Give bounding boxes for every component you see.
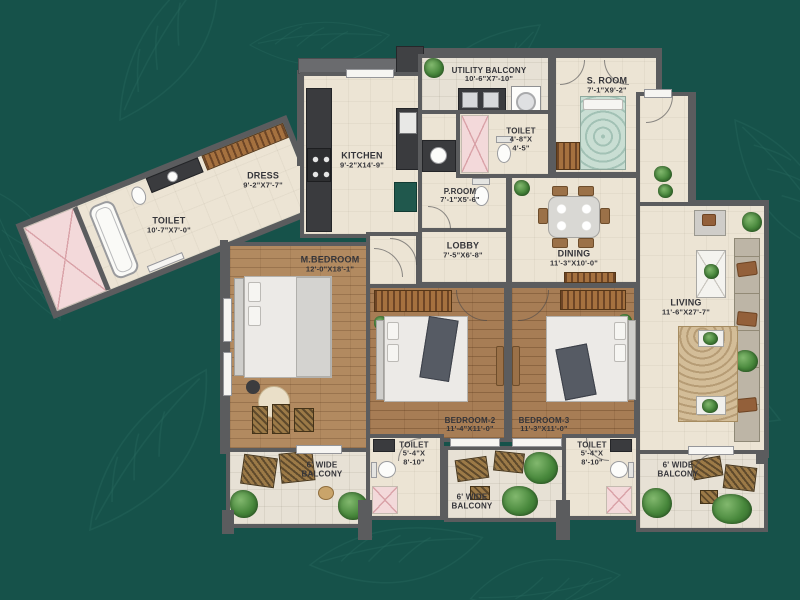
bench xyxy=(252,406,268,434)
plant xyxy=(742,212,762,232)
dress-label: DRESS 9'-2"X7'-7" xyxy=(243,171,283,190)
sofa-pillow xyxy=(736,261,758,278)
plant xyxy=(712,494,752,524)
sofa-pillow xyxy=(736,397,757,413)
p-room-label: P.ROOM 7'-1"X5'-6" xyxy=(440,187,480,205)
tv-unit xyxy=(512,346,520,386)
dining-chair xyxy=(538,208,548,224)
bed3-headboard xyxy=(628,320,636,400)
dining-chair xyxy=(578,238,594,248)
entry-door xyxy=(644,89,672,98)
side-table xyxy=(318,486,334,500)
mbed-headboard xyxy=(234,278,244,376)
armchair-pillow xyxy=(702,214,716,226)
dining-sideboard xyxy=(564,272,616,283)
toilet3-vanity xyxy=(610,439,632,452)
mbed-duvet xyxy=(296,277,331,377)
bedroom3-wardrobe xyxy=(560,290,626,310)
wall-post xyxy=(358,500,372,540)
mbedroom-window xyxy=(223,352,232,396)
dining-label: DINING 11'-3"X10'-0" xyxy=(550,248,598,267)
plant xyxy=(658,184,673,198)
bed-pillow xyxy=(614,322,626,340)
dining-table xyxy=(548,196,600,238)
bed-pillow xyxy=(248,306,261,326)
dining-chair xyxy=(552,186,568,196)
shower-area xyxy=(461,115,489,173)
plant xyxy=(514,180,530,196)
mbedroom-window xyxy=(223,298,232,342)
bed-pillow xyxy=(614,344,626,362)
mbedroom-balcony-door xyxy=(296,445,342,454)
lobby-label: LOBBY 7'-5"X6'-8" xyxy=(443,240,483,259)
bench xyxy=(272,404,290,434)
bed-pillow xyxy=(387,322,399,340)
toilet2-vanity xyxy=(373,439,395,452)
wc-bowl xyxy=(610,461,628,478)
dining-chair xyxy=(600,208,610,224)
plant xyxy=(703,332,718,345)
bed-pillow xyxy=(583,99,623,110)
living-label: LIVING 11'-6"X27'-7" xyxy=(662,297,710,316)
stool xyxy=(246,380,260,394)
stove-cooktop xyxy=(307,148,331,182)
s-room-label: S. ROOM 7'-1"X9'-2" xyxy=(587,75,627,94)
dining-chair xyxy=(552,238,568,248)
wc-tank xyxy=(628,462,634,478)
shower-area xyxy=(606,486,632,514)
bedroom2-label: BEDROOM-2 11'-4"X11'-0" xyxy=(445,416,496,434)
bedroom3-balcony-door xyxy=(512,438,562,447)
toilet-top-label: TOILET 4'-8"X 4'-5" xyxy=(506,126,536,153)
bedroom3-label: BEDROOM-3 11'-3"X11'-0" xyxy=(519,416,570,434)
shower-area xyxy=(372,486,398,514)
wall-post xyxy=(222,510,234,534)
bench xyxy=(294,408,314,432)
tv-unit xyxy=(496,346,504,386)
dining-chair xyxy=(578,186,594,196)
balcony-left-label: 6' WIDE BALCONY xyxy=(302,461,343,480)
kitchen-window xyxy=(346,69,394,78)
proom-wc-tank xyxy=(472,178,490,185)
bed-pillow xyxy=(248,282,261,302)
balcony-middle-label: 6' WIDE BALCONY xyxy=(452,493,493,512)
bedroom2-balcony-door xyxy=(450,438,500,447)
toilet-bedroom2-label: TOILET 5'-4"X 8'-10" xyxy=(399,440,429,467)
utility-balcony-label: UTILITY BALCONY 10'-6"X7'-10" xyxy=(452,66,527,84)
sroom-wardrobe xyxy=(556,142,580,170)
sofa-pillow xyxy=(736,311,757,327)
plant xyxy=(704,264,719,279)
m-bedroom-label: M.BEDROOM 12'-0"X18'-1" xyxy=(301,254,360,273)
wing-toilet-label: TOILET 10'-7"X7'-0" xyxy=(147,215,191,234)
living-balcony-door xyxy=(688,446,734,455)
refrigerator-door xyxy=(399,112,417,134)
plant xyxy=(642,488,672,518)
balcony-right-label: 6' WIDE BALCONY xyxy=(658,461,699,480)
utility-sink xyxy=(462,92,478,108)
plant xyxy=(524,452,558,484)
wall-post xyxy=(756,450,768,464)
crate xyxy=(723,464,758,492)
wc-tank xyxy=(371,462,377,478)
crate xyxy=(455,456,490,482)
bedroom2-wardrobe xyxy=(374,290,452,312)
plant xyxy=(424,58,444,78)
wc-bowl xyxy=(378,461,396,478)
plant xyxy=(702,399,718,413)
crate xyxy=(493,450,525,473)
plant xyxy=(230,490,258,518)
bed-pillow xyxy=(387,344,399,362)
utility-sink xyxy=(483,92,499,108)
proom-basin xyxy=(430,147,447,164)
plant xyxy=(654,166,672,182)
kitchen-sink-unit xyxy=(394,182,417,212)
wall-post xyxy=(556,500,570,540)
lounge-chair xyxy=(240,454,278,488)
plant xyxy=(502,486,538,516)
floor-plan-canvas: TOILET 10'-7"X7'-0" DRESS 9'-2"X7'-7" xyxy=(0,0,800,600)
kitchen-label: KITCHEN 9'-2"X14'-9" xyxy=(340,150,384,169)
bed2-headboard xyxy=(376,320,384,400)
toilet-bedroom3-label: TOILET 5'-4"X 8'-10" xyxy=(577,440,607,467)
